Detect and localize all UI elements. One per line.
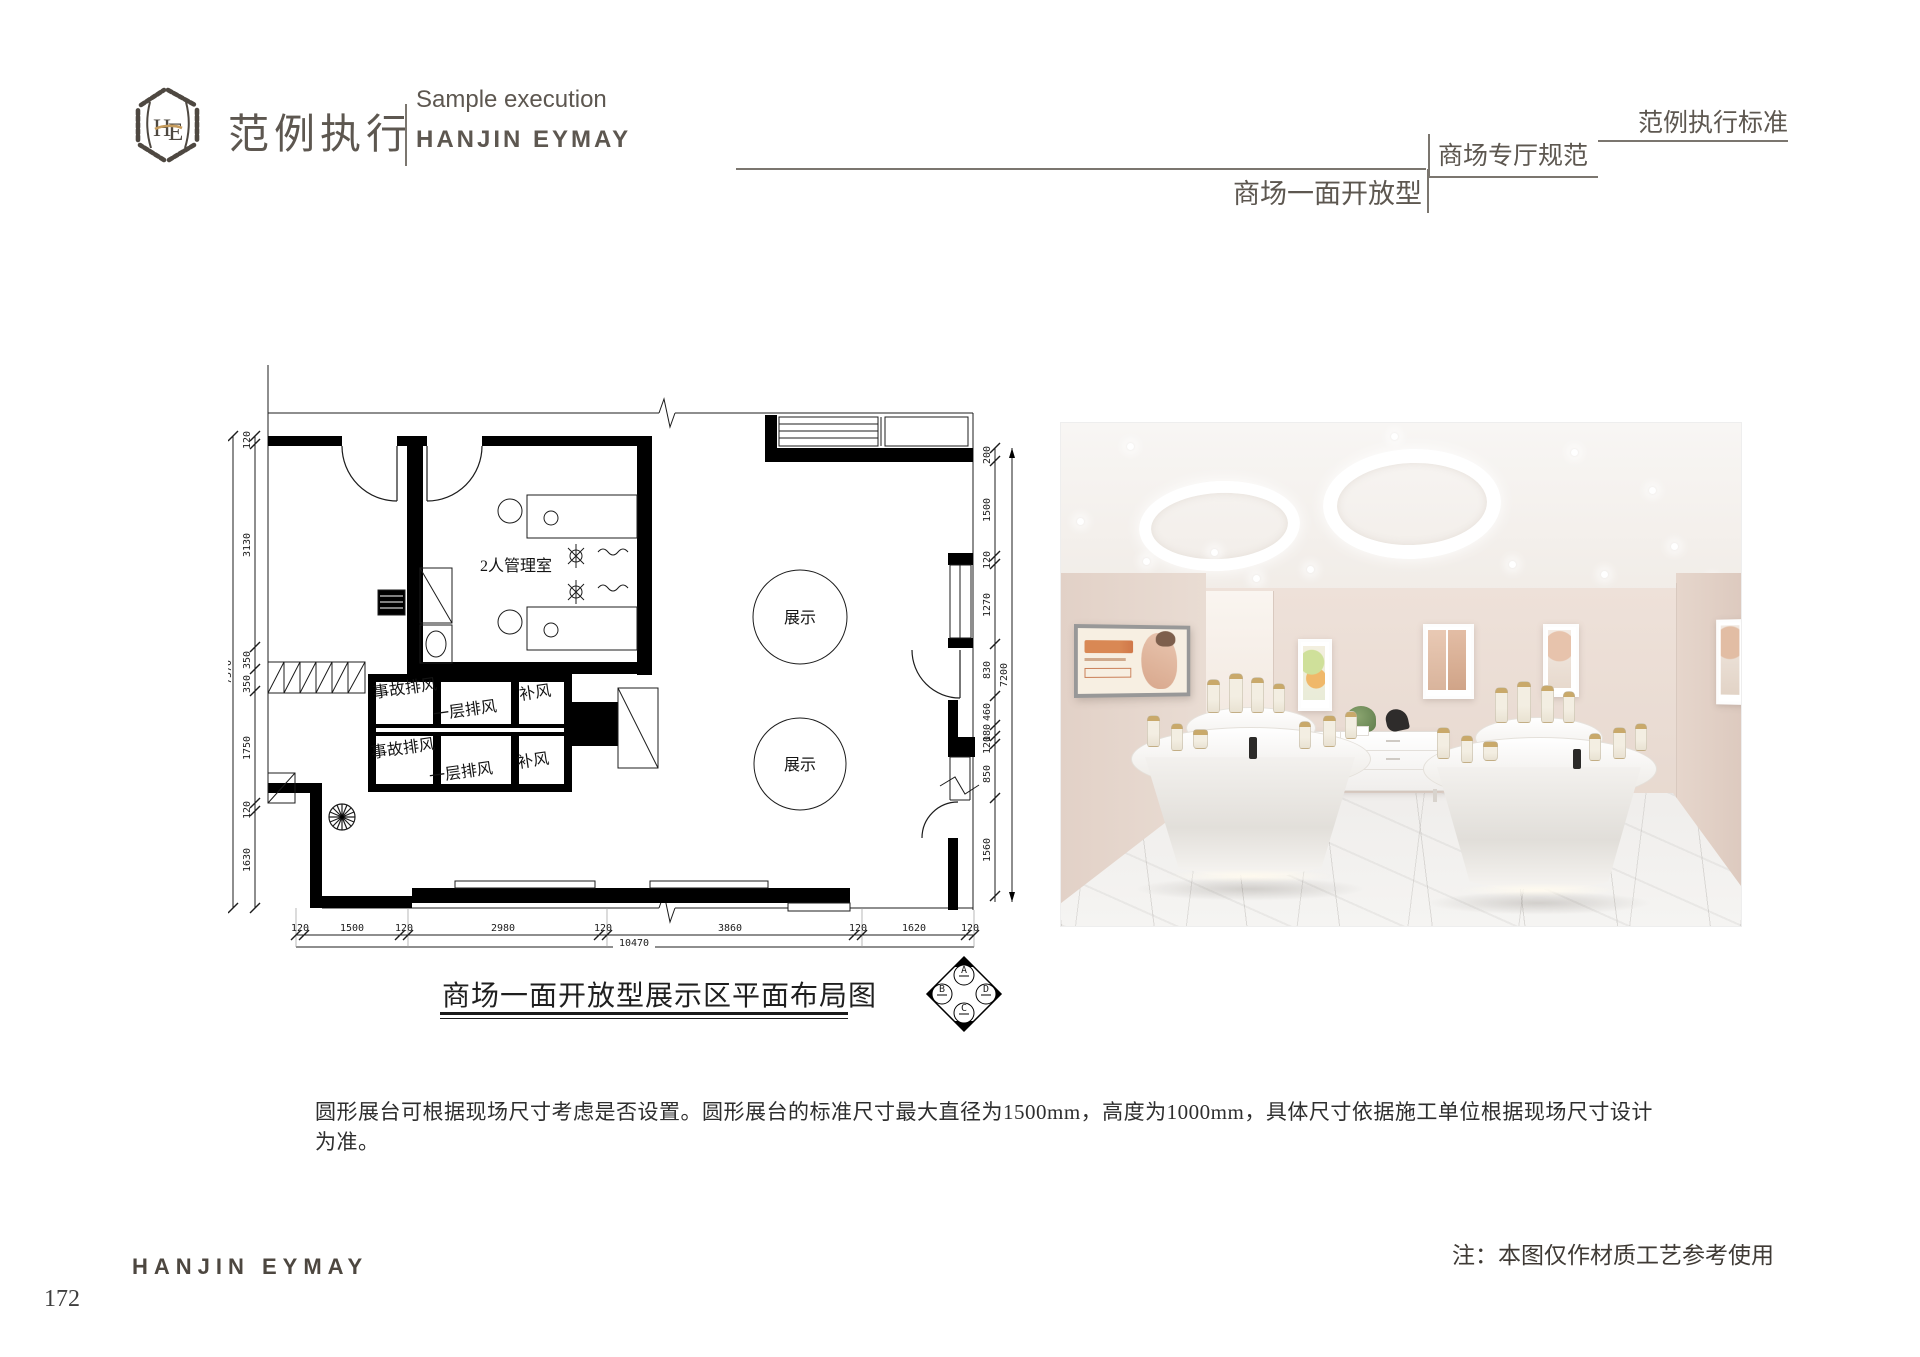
dim-label: 120 <box>982 736 993 754</box>
poster-right-wall <box>1716 619 1742 705</box>
compass-c: C <box>961 1003 967 1014</box>
dim-label: 1560 <box>982 838 993 862</box>
dim-label: 1270 <box>982 593 993 617</box>
monogram-letter-e: E <box>168 119 183 146</box>
table-shadow <box>1131 877 1369 901</box>
vent-label: 补风 <box>516 750 550 772</box>
compass-a: A <box>961 965 967 976</box>
page: H E 范例执行 Sample execution HANJIN EYMAY 范… <box>0 0 1920 1357</box>
spotlight <box>1211 549 1218 556</box>
dim-label: 120 <box>395 923 413 934</box>
header-divider <box>405 104 407 166</box>
poster-face-left <box>1428 630 1446 690</box>
duct-block <box>572 702 618 746</box>
bottle <box>1613 727 1626 759</box>
dim-label: 460 <box>982 703 993 721</box>
poster-faces <box>1423 624 1474 699</box>
dim-label: 1630 <box>242 848 253 872</box>
dim-total-left: 7570 <box>228 660 234 684</box>
spotlight <box>1307 566 1314 573</box>
poster-artwork <box>1721 625 1740 695</box>
spotlight <box>1671 543 1678 550</box>
exhaust-fan-icon <box>329 804 355 830</box>
bottle <box>1273 683 1285 713</box>
dim-label: 120 <box>242 801 253 819</box>
dim-chain-bottom: 120 1500 120 2980 120 3860 120 1620 120 … <box>291 908 979 949</box>
shelving-unit <box>779 417 968 446</box>
bottle <box>1541 685 1554 723</box>
spotlight <box>1143 558 1150 565</box>
bottle <box>1207 679 1220 713</box>
dim-chain-right: 200 1500 120 1270 830 460 180 120 850 15… <box>982 443 1015 902</box>
header-rule <box>736 168 1426 170</box>
dim-total-right: 7200 <box>999 663 1010 687</box>
showroom-render-photo <box>1060 422 1742 927</box>
banner-headline-art <box>1085 640 1134 653</box>
banner-subline-art <box>1085 658 1126 661</box>
material-note: 注：本图仅作材质工艺参考使用 <box>1452 1236 1774 1270</box>
page-number: 172 <box>44 1286 80 1313</box>
brand-en: HANJIN EYMAY <box>416 126 631 154</box>
plan-caption: 商场一面开放型展示区平面布局图 <box>442 974 877 1014</box>
dim-label: 200 <box>982 446 993 464</box>
vent-label: 一层排风 <box>432 697 498 724</box>
dim-total-bottom: 10470 <box>619 938 649 949</box>
dim-label: 1620 <box>902 923 926 934</box>
bottle <box>1589 733 1601 761</box>
spotlight <box>1509 561 1516 568</box>
dim-label: 120 <box>849 923 867 934</box>
bottle <box>1461 735 1473 763</box>
walls <box>268 415 975 910</box>
person-symbol <box>568 544 584 568</box>
dim-label: 1500 <box>982 498 993 522</box>
vent-label: 事故排风 <box>370 735 436 762</box>
bottle <box>1635 723 1647 751</box>
drawer-handle <box>1386 740 1400 742</box>
table-body <box>1437 767 1641 889</box>
body-paragraph: 圆形展台可根据现场尺寸考虑是否设置。圆形展台的标准尺寸最大直径为1500mm，高… <box>315 1096 1655 1156</box>
poster-product <box>1298 639 1332 711</box>
dim-label: 850 <box>982 765 993 783</box>
dim-label: 3130 <box>242 533 253 557</box>
dim-label: 1750 <box>242 736 253 760</box>
section-label-box: 商场专厅规范 <box>1428 134 1598 178</box>
spotlight <box>1391 433 1398 440</box>
wave-symbol <box>598 585 628 591</box>
brand-emblem-icon: H E <box>128 84 208 174</box>
dim-label: 120 <box>961 923 979 934</box>
dim-label: 120 <box>982 551 993 569</box>
poster-artwork <box>1548 630 1571 688</box>
table-shadow <box>1423 891 1655 915</box>
spotlight <box>1571 449 1578 456</box>
dim-label: 830 <box>982 661 993 679</box>
display-label-1: 展示 <box>784 610 816 627</box>
dark-bottle <box>1249 737 1257 759</box>
compass-d: D <box>983 984 989 995</box>
hatched-band <box>268 662 365 803</box>
wall-corner-line <box>1676 583 1677 803</box>
bottle <box>1495 687 1508 723</box>
page-type-divider <box>1427 169 1429 213</box>
spotlight <box>1077 518 1084 525</box>
spotlight <box>1127 443 1134 450</box>
poster-artwork <box>1303 646 1325 700</box>
display-label-2: 展示 <box>784 757 816 774</box>
bottle <box>1299 721 1311 749</box>
vent-labels: 事故排风 一层排风 补风 事故排风 一层排风 补风 <box>370 675 552 786</box>
dim-label: 2980 <box>491 923 515 934</box>
bottle <box>1147 715 1160 747</box>
floor-plan: 展示 展示 2人管理室 事故排风 一层排风 补风 事故排风 一层排风 补风 A … <box>228 360 1040 1040</box>
standard-underline <box>1598 140 1788 142</box>
dim-label: 3860 <box>718 923 742 934</box>
compass-symbol: A B C D <box>927 957 1001 1031</box>
wave-symbol <box>598 549 628 555</box>
cosmetic-jar <box>1483 741 1498 761</box>
bottle <box>1563 691 1575 723</box>
bottle <box>1171 723 1183 751</box>
dim-label: 120 <box>242 431 253 449</box>
dark-bottle <box>1573 749 1581 769</box>
display-tables: 展示 展示 <box>753 570 847 810</box>
standard-label: 范例执行标准 <box>1596 103 1788 139</box>
bottle <box>1323 715 1336 747</box>
drawer-handle <box>1386 758 1400 760</box>
bottle <box>1437 727 1450 759</box>
brand-cn-title: 范例执行 <box>228 100 412 160</box>
round-display-table-right <box>1423 731 1655 901</box>
bottle <box>1251 677 1264 713</box>
bottle <box>1517 681 1531 723</box>
spotlight <box>1253 575 1260 582</box>
bottle <box>1345 711 1357 739</box>
dim-label: 350 <box>242 651 253 669</box>
plan-caption-underline <box>440 1012 848 1019</box>
vent-label: 补风 <box>518 682 552 704</box>
vent-showcase <box>618 688 658 768</box>
spotlight <box>1601 571 1608 578</box>
manager-room-label: 2人管理室 <box>480 557 552 575</box>
table-body <box>1145 757 1355 875</box>
banner-art <box>1074 624 1190 698</box>
dim-label: 350 <box>242 675 253 693</box>
person-symbol <box>568 580 584 604</box>
footer-brand: HANJIN EYMAY <box>132 1254 368 1280</box>
subtitle-en: Sample execution <box>416 86 607 114</box>
cosmetic-jar <box>1193 729 1208 749</box>
banner-tagline-art <box>1085 668 1132 678</box>
bottle <box>1229 673 1243 713</box>
dim-label: 120 <box>594 923 612 934</box>
banner-model-hair <box>1156 631 1176 647</box>
dim-label: 120 <box>291 923 309 934</box>
poster-face-right <box>1448 630 1466 690</box>
page-type-label: 商场一面开放型 <box>1196 172 1422 211</box>
round-display-table-left <box>1131 721 1369 889</box>
dim-chain-left: 120 3130 350 350 1750 120 1630 7570 <box>228 431 260 913</box>
compass-b: B <box>939 984 945 995</box>
dim-label: 1500 <box>340 923 364 934</box>
spotlight <box>1649 487 1656 494</box>
